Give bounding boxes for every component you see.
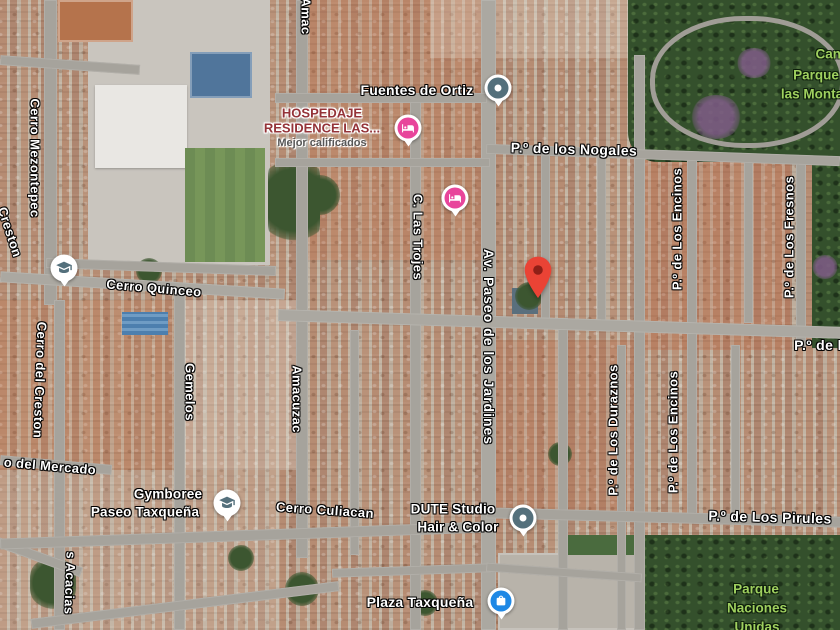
jacaranda-patch (812, 255, 838, 279)
roof-zone (430, 0, 640, 58)
bed-icon (398, 118, 419, 139)
park-label-naciones-line1: Parque (733, 582, 779, 597)
tennis-courts (58, 0, 133, 42)
tree (228, 545, 254, 571)
road (558, 318, 568, 630)
poi-label-dute-line1[interactable]: DUTE Studio (411, 502, 496, 517)
place-dot-icon (520, 515, 527, 522)
road (597, 150, 606, 322)
pool-building (122, 312, 168, 335)
jacaranda-patch (690, 95, 742, 139)
street-label-encinos-lower: P.º de Los Encinos (666, 371, 681, 493)
generic-place-icon[interactable] (485, 75, 512, 102)
street-label-amacuzac-top: Amac (299, 0, 314, 35)
place-disc (513, 508, 534, 529)
street-label-fresnos: P.º de Los Fresnos (782, 176, 797, 298)
roof-zone (180, 300, 300, 470)
sports-field (185, 148, 265, 262)
poi-label-mejor-calificados: Mejor calificados (277, 137, 366, 149)
road (796, 162, 806, 347)
place-disc (488, 78, 509, 99)
hotel-icon[interactable] (395, 115, 422, 142)
road (744, 158, 753, 323)
street-label-nogales: P.º de los Nogales (511, 139, 638, 158)
bed-icon (445, 188, 466, 209)
poi-label-dute-line2[interactable]: Hair & Color (417, 520, 498, 535)
street-label-av-jardines: Av. Paseo de los Jardines (481, 249, 497, 445)
place-dot-icon (495, 85, 502, 92)
park-label-top-line2: Parque (793, 68, 839, 83)
road (687, 158, 697, 518)
street-label-duraznos: P.º de Los Duraznos (606, 364, 621, 495)
road (634, 55, 645, 630)
road (410, 95, 421, 630)
green-strip (560, 535, 640, 555)
park-label-top-line1: Canc (815, 47, 840, 62)
park-label-top-line3: las Monta (781, 87, 840, 102)
jacaranda-patch (736, 48, 772, 78)
road (350, 330, 359, 555)
sports-courts (190, 52, 252, 98)
road (174, 292, 185, 630)
park-label-naciones-line2: Naciones (727, 601, 787, 616)
poi-label-hospedaje-line1[interactable]: HOSPEDAJE (282, 106, 362, 121)
poi-label-gymboree-line2[interactable]: Paseo Taxqueña (91, 505, 199, 520)
street-label-gemelos: Gemelos (183, 363, 198, 421)
hotel-icon[interactable] (442, 185, 469, 212)
education-icon[interactable] (214, 490, 241, 517)
road (731, 345, 740, 517)
road (296, 0, 308, 558)
shopping-bag-icon (491, 591, 512, 612)
poi-label-gymboree-line1[interactable]: Gymboree (134, 487, 202, 502)
street-label-encinos-upper: P.º de Los Encinos (670, 168, 685, 290)
street-label-cut-right: P.º de l (794, 337, 840, 353)
poi-label-hospedaje-line2[interactable]: RESIDENCE LAS... (264, 121, 380, 136)
poi-label-fuentes-de-ortiz[interactable]: Fuentes de Ortiz (361, 82, 474, 98)
park-label-naciones-line3: Unidas (734, 620, 779, 630)
graduation-cap-icon (56, 260, 73, 277)
street-label-pirules: P.º de Los Pirules (708, 507, 832, 526)
street-label-las-trojes: C. Las Trojes (411, 194, 426, 280)
map-viewport[interactable]: Amac Cerro Mezontepec Creston Cerro Quin… (0, 0, 840, 630)
shopping-icon[interactable] (488, 588, 515, 615)
poi-label-plaza-taxquena[interactable]: Plaza Taxqueña (367, 594, 474, 610)
destination-pin-icon[interactable] (522, 255, 554, 306)
generic-place-icon[interactable] (510, 505, 537, 532)
street-label-acacias: s Acacias (61, 551, 78, 615)
graduation-cap-icon (219, 495, 236, 512)
road (275, 158, 490, 167)
school-building (95, 85, 187, 168)
street-label-cerro-mezontepec: Cerro Mezontepec (28, 98, 43, 217)
street-label-amacuzac: Amacuzac (290, 365, 305, 433)
education-icon[interactable] (51, 255, 78, 282)
